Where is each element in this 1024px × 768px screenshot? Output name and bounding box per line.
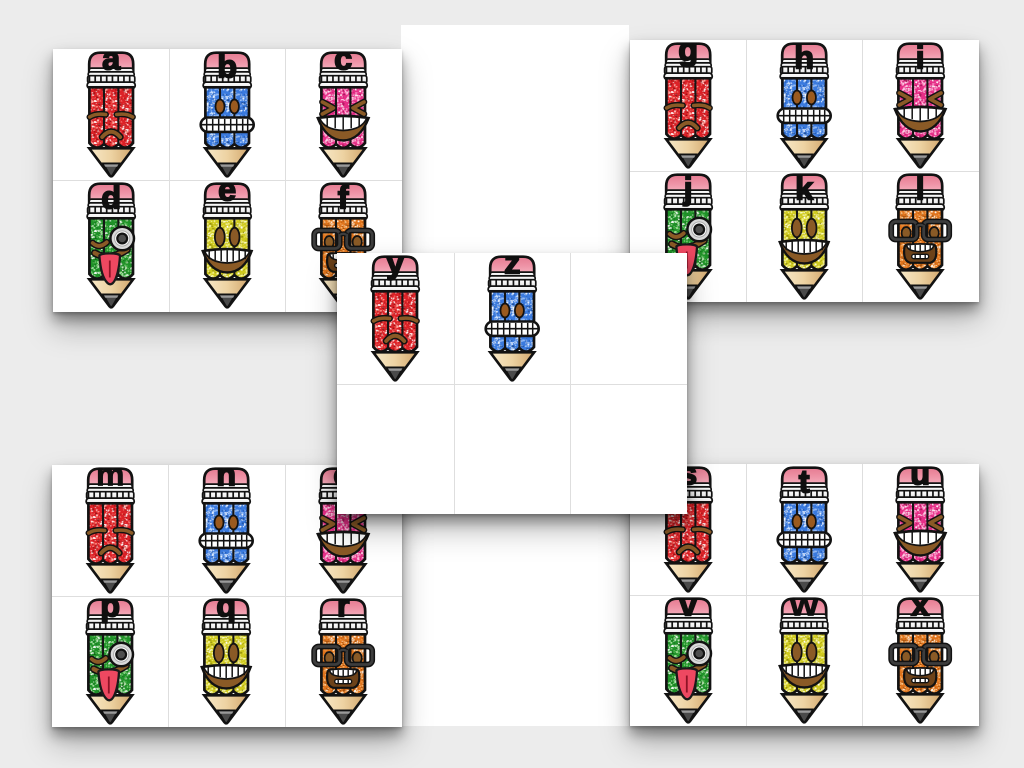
svg-text:r: r bbox=[337, 587, 350, 623]
svg-text:d: d bbox=[101, 180, 121, 216]
svg-text:u: u bbox=[910, 455, 930, 491]
svg-text:j: j bbox=[682, 170, 692, 206]
svg-text:t: t bbox=[799, 463, 810, 499]
svg-text:h: h bbox=[794, 39, 814, 75]
svg-text:y: y bbox=[386, 245, 404, 281]
svg-text:w: w bbox=[789, 586, 819, 622]
svg-text:v: v bbox=[679, 586, 697, 622]
svg-text:g: g bbox=[678, 32, 698, 68]
svg-text:z: z bbox=[504, 245, 520, 281]
svg-text:q: q bbox=[216, 587, 236, 623]
svg-text:c: c bbox=[334, 41, 352, 77]
svg-text:m: m bbox=[95, 456, 123, 492]
svg-text:a: a bbox=[102, 41, 121, 77]
svg-text:p: p bbox=[100, 587, 120, 623]
svg-text:e: e bbox=[218, 172, 236, 208]
svg-text:n: n bbox=[216, 456, 236, 492]
svg-text:x: x bbox=[911, 586, 929, 622]
svg-text:f: f bbox=[338, 180, 349, 216]
svg-text:b: b bbox=[217, 48, 237, 84]
svg-text:i: i bbox=[916, 39, 925, 75]
svg-text:k: k bbox=[795, 170, 814, 206]
svg-text:l: l bbox=[916, 170, 925, 206]
